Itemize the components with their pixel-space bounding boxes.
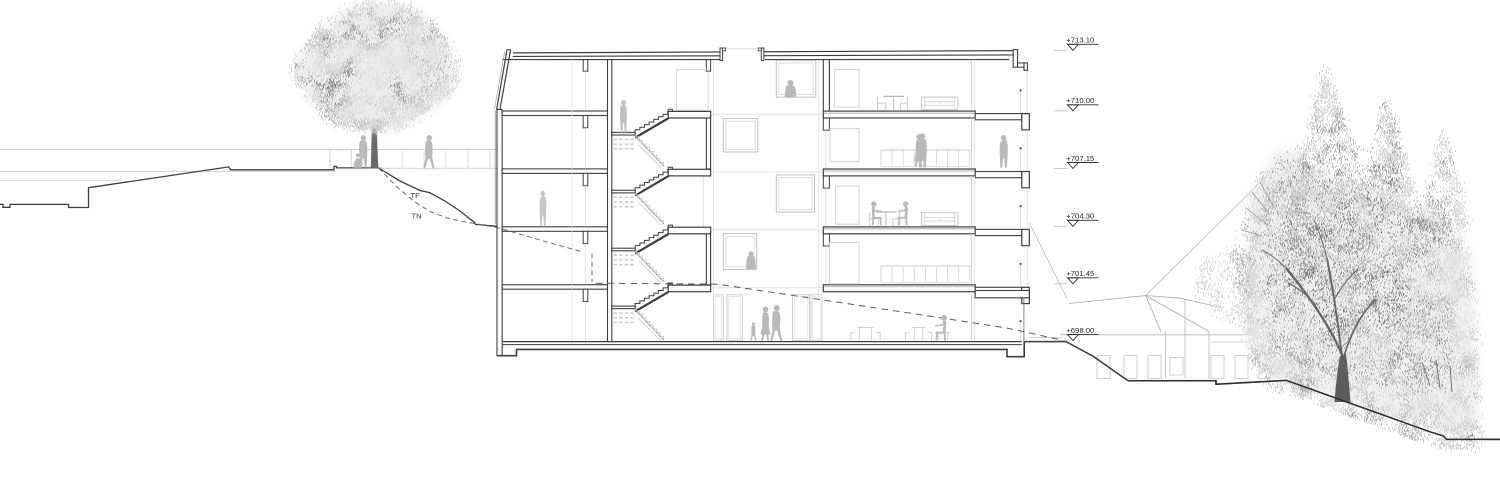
svg-text:+701.45: +701.45 [1066,269,1094,278]
svg-text:+704.30: +704.30 [1066,212,1094,221]
svg-text:+707.15: +707.15 [1066,154,1094,163]
svg-text:+710.00: +710.00 [1066,96,1094,105]
svg-text:TN: TN [412,211,422,220]
svg-text:TF: TF [411,191,421,200]
svg-text:+713.10: +713.10 [1066,36,1094,45]
svg-text:+698.00: +698.00 [1066,326,1094,335]
